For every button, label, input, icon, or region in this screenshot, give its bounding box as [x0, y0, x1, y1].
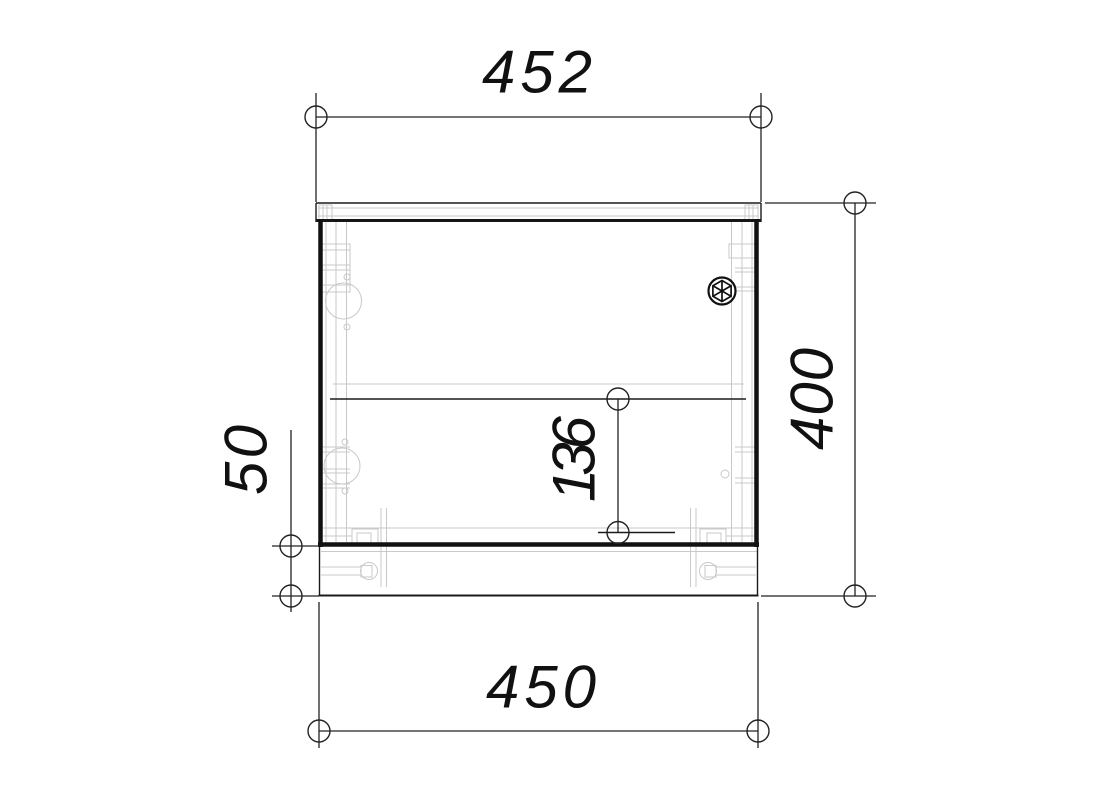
dimension-overall-height: 400 [761, 192, 876, 607]
corner-block [352, 529, 378, 544]
dimension-inner-height: 136 [541, 388, 630, 544]
corner-block [700, 529, 726, 544]
dimension-bottom-width-label: 450 [486, 654, 598, 721]
wheel-spoke [722, 291, 731, 296]
wheel-spoke [713, 291, 722, 296]
corner-block-right [700, 529, 754, 544]
rail-clip-right [745, 205, 758, 220]
corner-block-left [323, 529, 378, 544]
wheel-spoke [713, 286, 722, 291]
plinth [319, 547, 759, 596]
right-side-panel [732, 222, 753, 542]
dimension-plinth-height: 50 [213, 423, 320, 612]
dimension-top-width: 452 [305, 39, 772, 203]
hinge-cup-top [326, 274, 362, 330]
spoked-wheel-icon [709, 278, 736, 305]
hinge-screw-hole [342, 488, 348, 494]
drawing-canvas: 452 450 400 136 50 [0, 0, 1100, 800]
cabinet-outline [316, 203, 761, 596]
hanger-nut [705, 566, 716, 578]
cabinet-technical-drawing: 452 450 400 136 50 [0, 0, 1100, 800]
hanger-bracket-right [691, 508, 757, 587]
dimension-top-width-label: 452 [482, 39, 594, 106]
rail-clip-left [319, 205, 332, 220]
interior-details [318, 205, 759, 587]
top-rail-details [318, 205, 759, 220]
hanger-bracket-left [321, 508, 387, 587]
top-rail [316, 203, 761, 222]
dimension-overall-height-label: 400 [779, 346, 846, 450]
dimension-plinth-height-label: 50 [213, 423, 280, 495]
shelf-pin-hole [721, 470, 729, 478]
wheel-spoke [722, 286, 731, 291]
carcass-box [318, 219, 759, 547]
hinge-cup-circle [324, 448, 360, 484]
hanger-nut [361, 566, 372, 578]
hinge-plate-bottom-right [735, 447, 756, 483]
dimension-inner-height-label: 136 [541, 414, 608, 502]
hinge-screw-hole [342, 439, 348, 445]
hinge-cup-circle [326, 283, 362, 319]
dimension-bottom-width: 450 [308, 602, 769, 748]
